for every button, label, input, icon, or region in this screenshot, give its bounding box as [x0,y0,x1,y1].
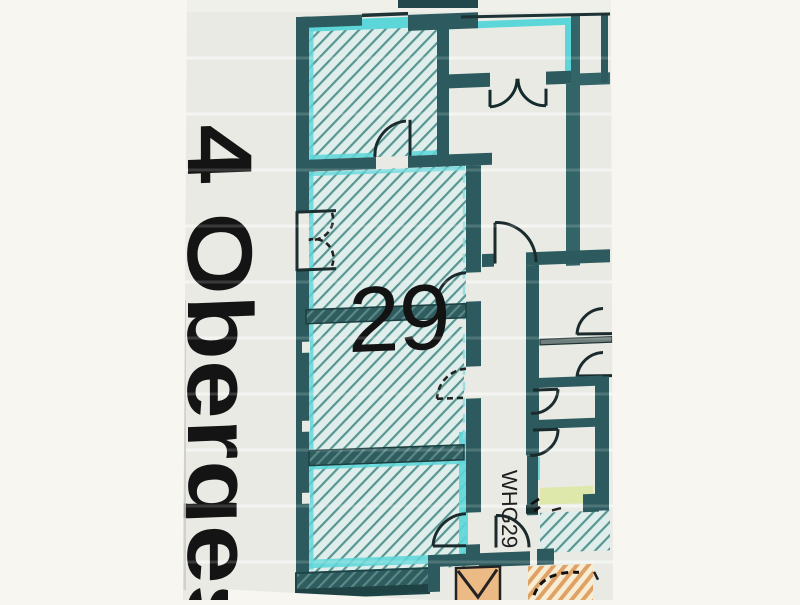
svg-text:WHG29: WHG29 [497,470,522,549]
